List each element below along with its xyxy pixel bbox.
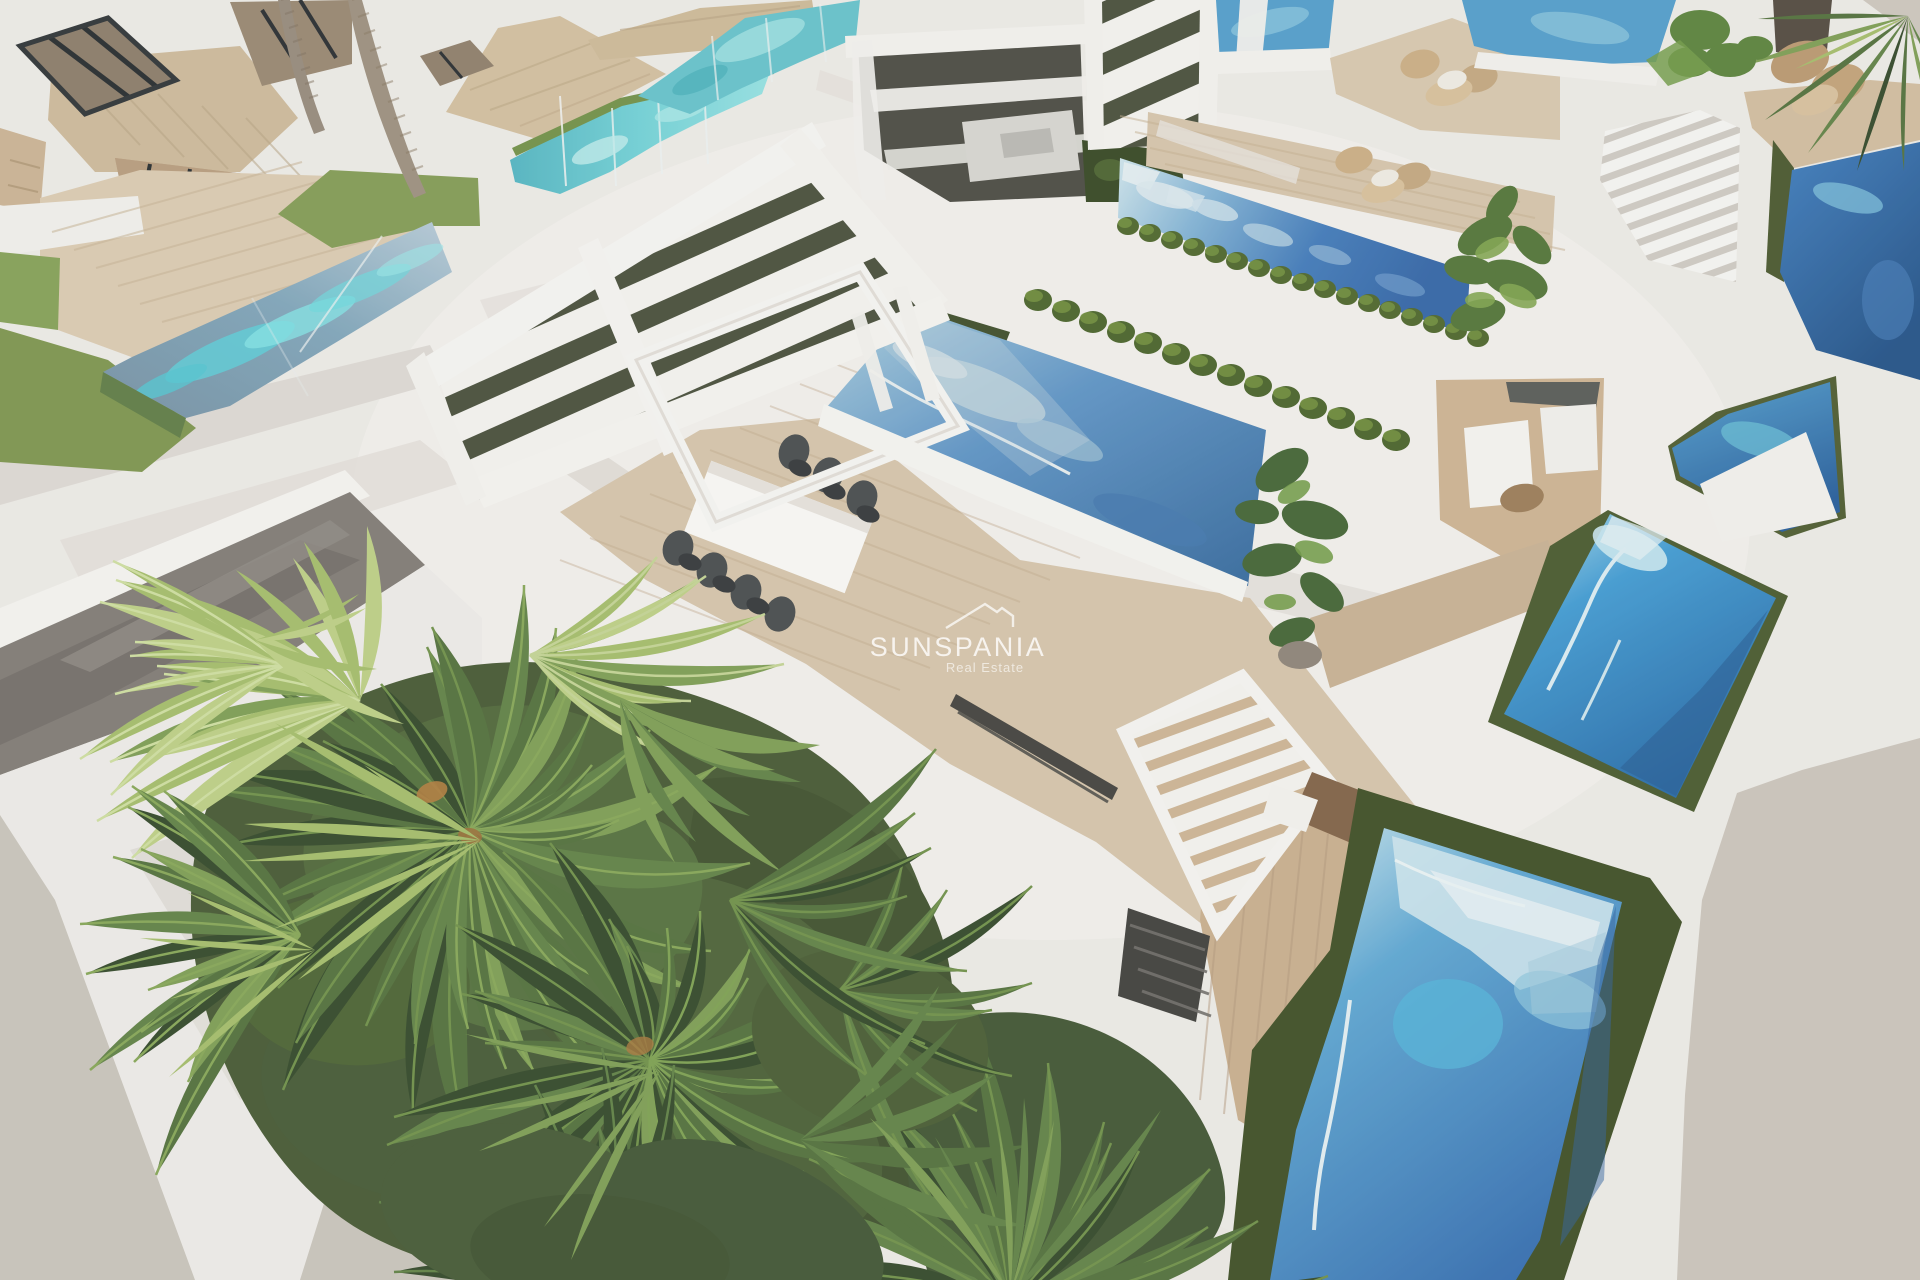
svg-text:Real Estate: Real Estate — [946, 660, 1024, 675]
svg-text:SUNSPANIA: SUNSPANIA — [870, 632, 1047, 662]
